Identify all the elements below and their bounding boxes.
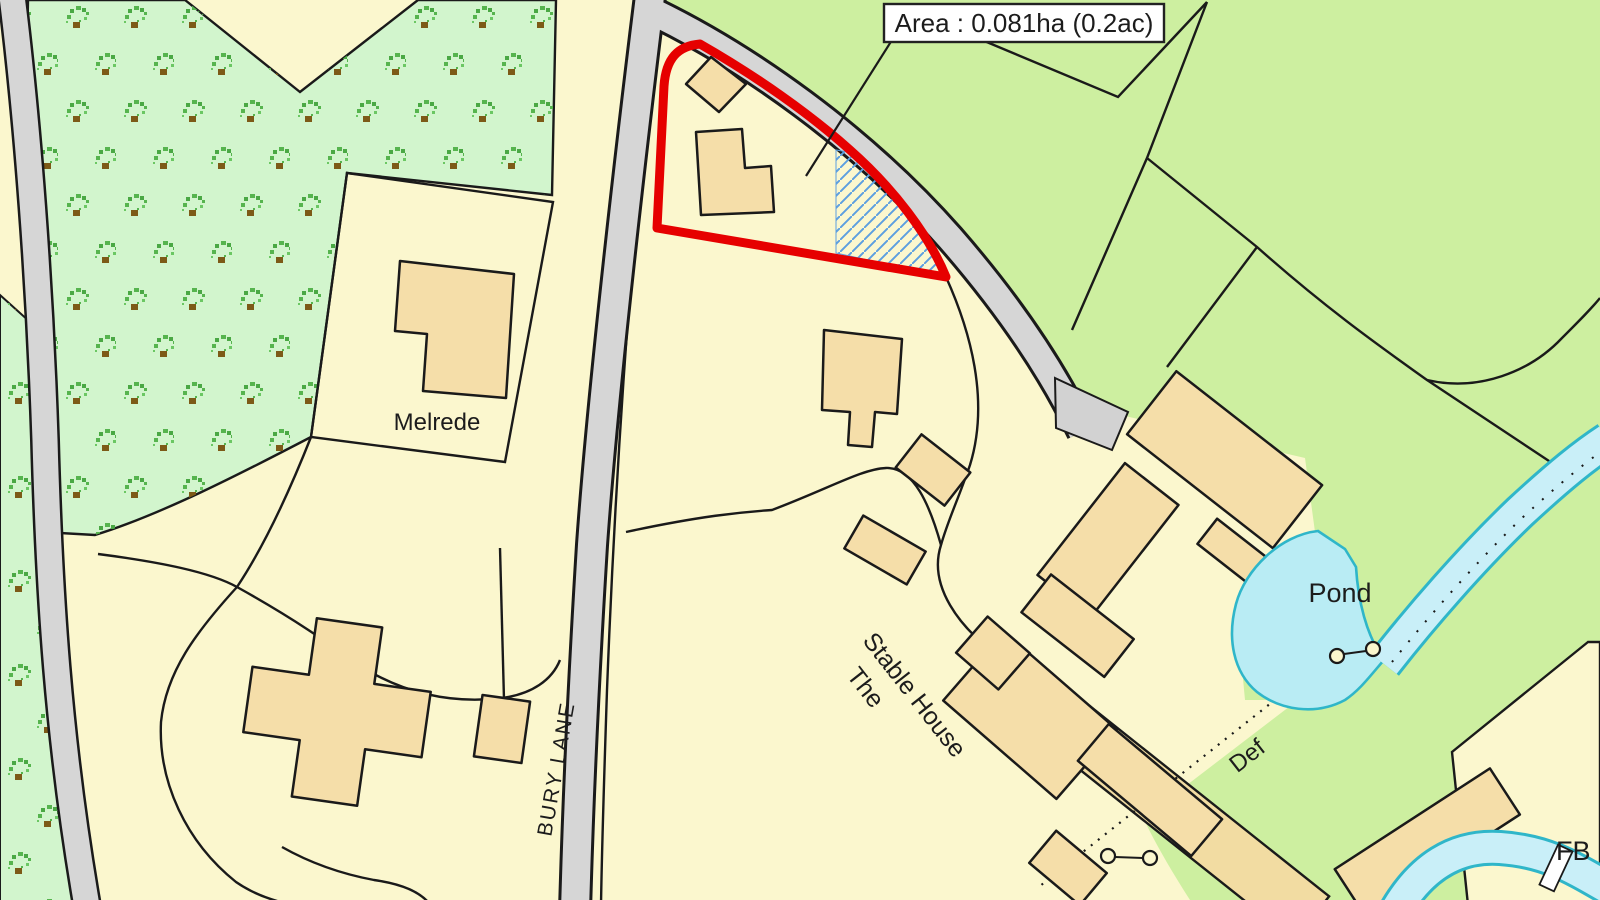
label-pond: Pond	[1308, 578, 1371, 608]
building-small-square	[474, 695, 530, 763]
area-label-text: Area : 0.081ha (0.2ac)	[895, 8, 1154, 38]
label-melrede: Melrede	[394, 409, 481, 436]
boundary-marker-circle	[1366, 642, 1380, 656]
map-svg: Melrede BURY LANE Pond Stable House The …	[0, 0, 1600, 900]
area-label-box: Area : 0.081ha (0.2ac)	[884, 4, 1164, 42]
map-canvas[interactable]: Melrede BURY LANE Pond Stable House The …	[0, 0, 1600, 900]
boundary-marker-circle	[1101, 849, 1115, 863]
boundary-marker-circle	[1330, 649, 1344, 663]
label-fb: FB	[1556, 836, 1591, 866]
boundary-marker-circle	[1143, 851, 1157, 865]
